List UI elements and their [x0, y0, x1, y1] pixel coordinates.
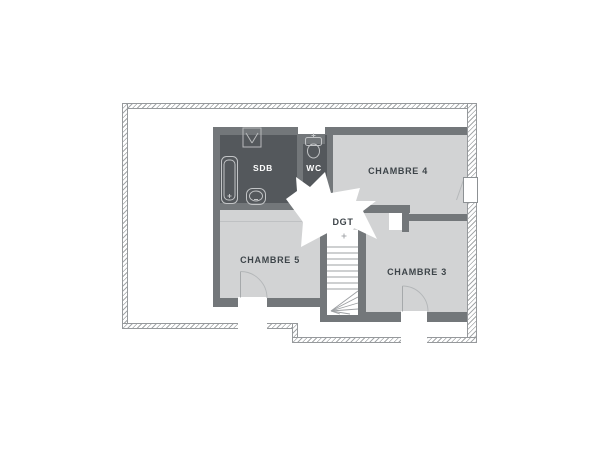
- toilet-icon: [306, 134, 322, 159]
- door-arc-chambre5: [241, 272, 268, 299]
- plan-overlay: [0, 0, 600, 450]
- window: [457, 178, 478, 203]
- room-label-wc: WC: [306, 163, 322, 173]
- chambre5-door: [238, 272, 267, 333]
- door-arc-chambre3: [403, 286, 429, 312]
- shower-icon: [243, 128, 261, 147]
- room-label-chambre3: CHAMBRE 3: [387, 267, 447, 277]
- sink-icon: [247, 189, 266, 205]
- room-label-dgt: DGT: [332, 217, 353, 227]
- chambre3-door: [401, 286, 428, 347]
- room-label-chambre4: CHAMBRE 4: [368, 166, 428, 176]
- bathtub-icon: [222, 157, 238, 204]
- room-label-chambre5: CHAMBRE 5: [240, 255, 300, 265]
- chambre3-door-niche: [389, 213, 402, 230]
- room-label-sdb: SDB: [253, 163, 273, 173]
- floor-plan: SDB WC CHAMBRE 4 DGT CHAMBRE 5 CHAMBRE 3: [0, 0, 600, 450]
